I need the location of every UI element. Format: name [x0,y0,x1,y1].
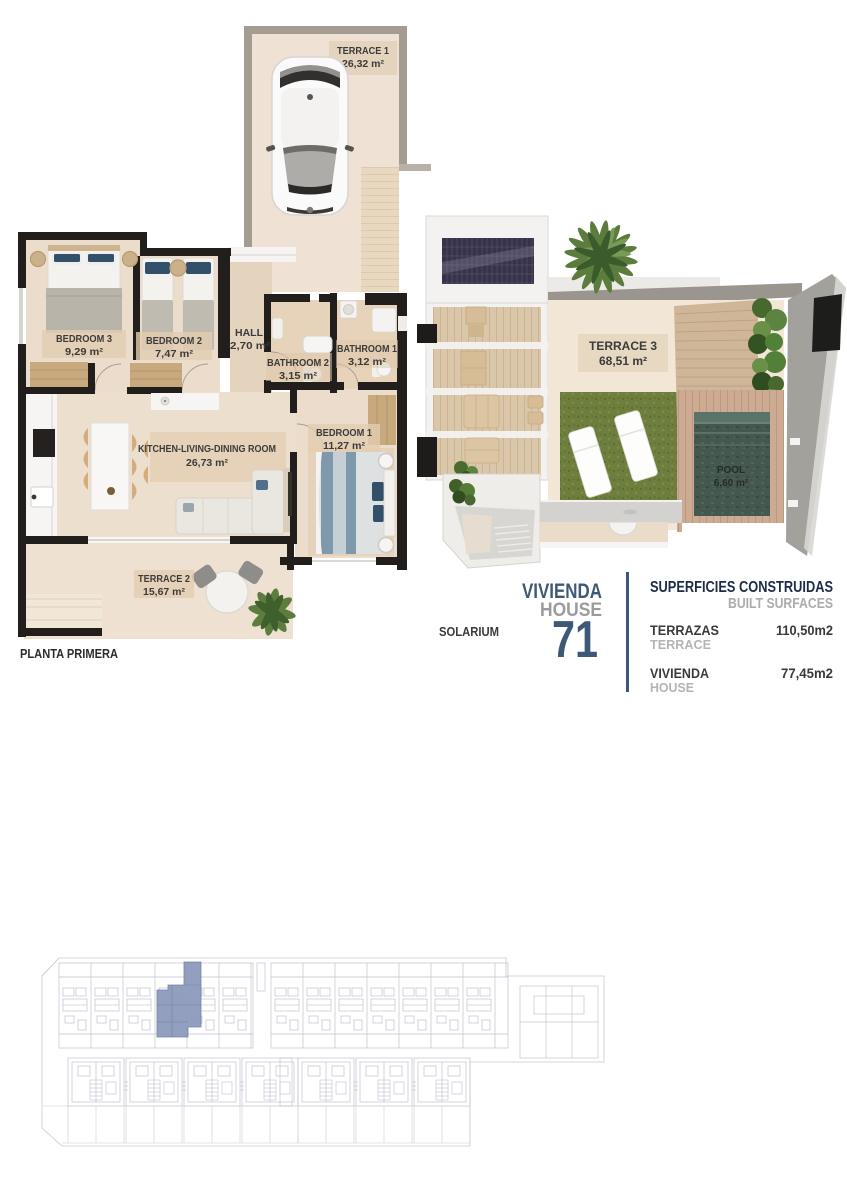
svg-text:BEDROOM 3: BEDROOM 3 [56,334,112,345]
svg-text:77,45m2: 77,45m2 [781,666,833,681]
svg-text:26,32 m²: 26,32 m² [342,59,385,70]
svg-text:KITCHEN-LIVING-DINING ROOM: KITCHEN-LIVING-DINING ROOM [138,444,276,455]
svg-text:15,67 m²: 15,67 m² [143,587,186,598]
svg-text:BATHROOM 1: BATHROOM 1 [337,344,397,355]
svg-text:TERRACE 1: TERRACE 1 [337,46,389,57]
svg-text:3,12 m²: 3,12 m² [348,357,387,368]
svg-text:VIVIENDA: VIVIENDA [650,666,709,681]
svg-text:SUPERFICIES CONSTRUIDAS: SUPERFICIES CONSTRUIDAS [650,579,833,596]
svg-text:6,60 m²: 6,60 m² [714,478,749,489]
svg-text:68,51 m²: 68,51 m² [599,354,647,368]
svg-text:TERRACE 3: TERRACE 3 [589,339,657,353]
svg-text:PLANTA PRIMERA: PLANTA PRIMERA [20,647,118,661]
svg-text:26,73 m²: 26,73 m² [186,458,229,469]
svg-text:110,50m2: 110,50m2 [776,623,833,638]
svg-text:POOL: POOL [717,465,745,476]
svg-text:HOUSE: HOUSE [650,681,694,695]
svg-text:2,70 m²: 2,70 m² [230,341,271,352]
svg-text:BATHROOM 2: BATHROOM 2 [267,358,329,369]
svg-text:3,15 m²: 3,15 m² [279,371,318,382]
svg-text:BEDROOM 2: BEDROOM 2 [146,336,202,347]
svg-text:BUILT SURFACES: BUILT SURFACES [728,596,833,612]
svg-text:71: 71 [552,611,598,669]
svg-text:HALL: HALL [235,328,263,339]
svg-text:SOLARIUM: SOLARIUM [439,625,499,639]
svg-text:11,27 m²: 11,27 m² [323,441,366,452]
svg-text:TERRAZAS: TERRAZAS [650,623,719,638]
svg-text:TERRACE: TERRACE [650,638,711,652]
svg-text:7,47 m²: 7,47 m² [155,349,194,360]
svg-text:BEDROOM 1: BEDROOM 1 [316,428,372,439]
svg-text:9,29 m²: 9,29 m² [65,347,104,358]
svg-text:TERRACE 2: TERRACE 2 [138,574,190,585]
